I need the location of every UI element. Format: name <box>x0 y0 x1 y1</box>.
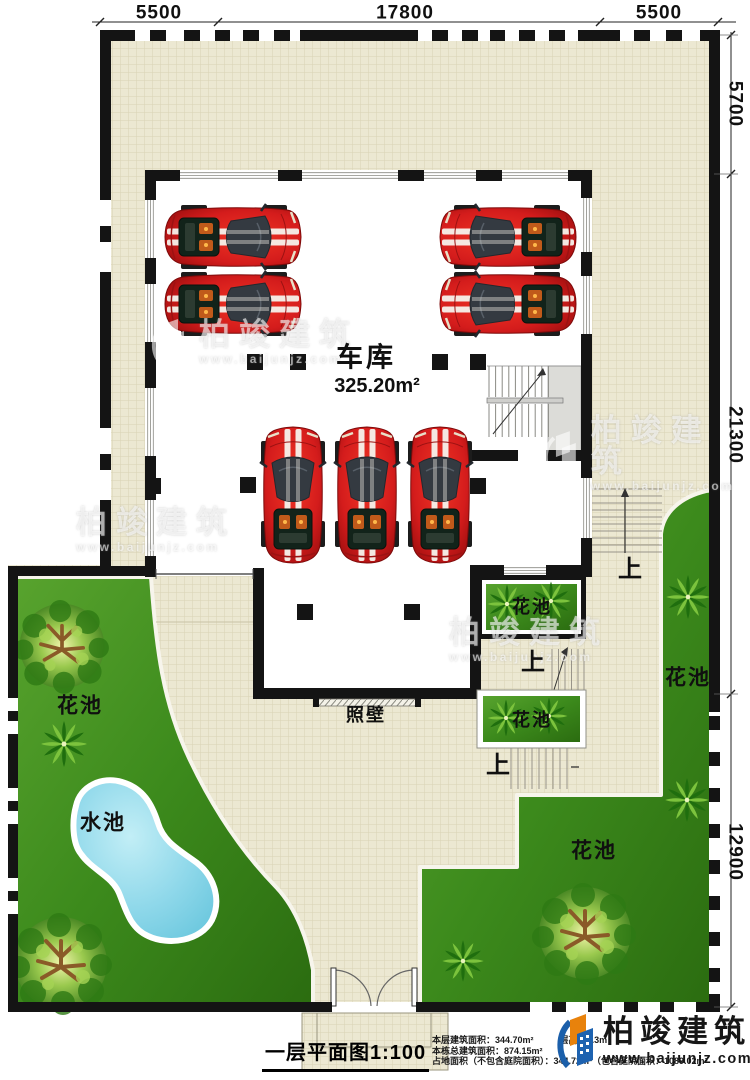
total-area-value: 874.15m² <box>504 1046 543 1056</box>
dim-right-lower: 12900 <box>726 823 745 881</box>
stairs-up-label-middle: 上 <box>521 651 545 675</box>
floor-plan-page: 柏竣建筑 www.baijunjz.com 柏竣建筑 www.baijunjz.… <box>0 0 750 1080</box>
stairs-up-label-east: 上 <box>618 558 642 582</box>
stairs-up-label-south: 上 <box>486 754 510 778</box>
garage-area-label: 325.20m² <box>334 376 420 396</box>
brand-logo-icon <box>556 1010 596 1072</box>
floor-area-value: 344.70m² <box>495 1035 534 1045</box>
floor-area-label: 本层建筑面积： <box>432 1035 495 1045</box>
dim-top-left: 5500 <box>136 4 182 23</box>
floor-area-line: 本层建筑面积：344.70m² <box>432 1035 534 1046</box>
floor-plan-drawing <box>0 0 750 1080</box>
brand-name: 柏竣建筑 <box>603 1016 750 1047</box>
total-area-label: 本栋总建筑面积： <box>432 1046 504 1056</box>
flower-bed-label-box2: 花池 <box>512 711 552 729</box>
water-pool-label: 水池 <box>80 813 126 834</box>
flower-bed-label-right: 花池 <box>665 668 711 689</box>
dim-right-middle: 21300 <box>726 406 745 464</box>
brand-url: www.baijunjz.com <box>603 1052 750 1067</box>
screen-wall-label: 照壁 <box>346 706 386 724</box>
brand-logo: 柏竣建筑 www.baijunjz.com <box>556 1010 750 1072</box>
dim-top-middle: 17800 <box>376 4 434 23</box>
dim-right-upper: 5700 <box>726 81 745 127</box>
flower-bed-label-box1: 花池 <box>512 598 552 616</box>
plan-title: 一层平面图1:100 <box>262 1036 429 1072</box>
flower-bed-label-bottom: 花池 <box>571 841 617 862</box>
dim-top-right: 5500 <box>636 4 682 23</box>
garage-label: 车库 <box>336 345 396 372</box>
flower-bed-label-left: 花池 <box>57 696 103 717</box>
